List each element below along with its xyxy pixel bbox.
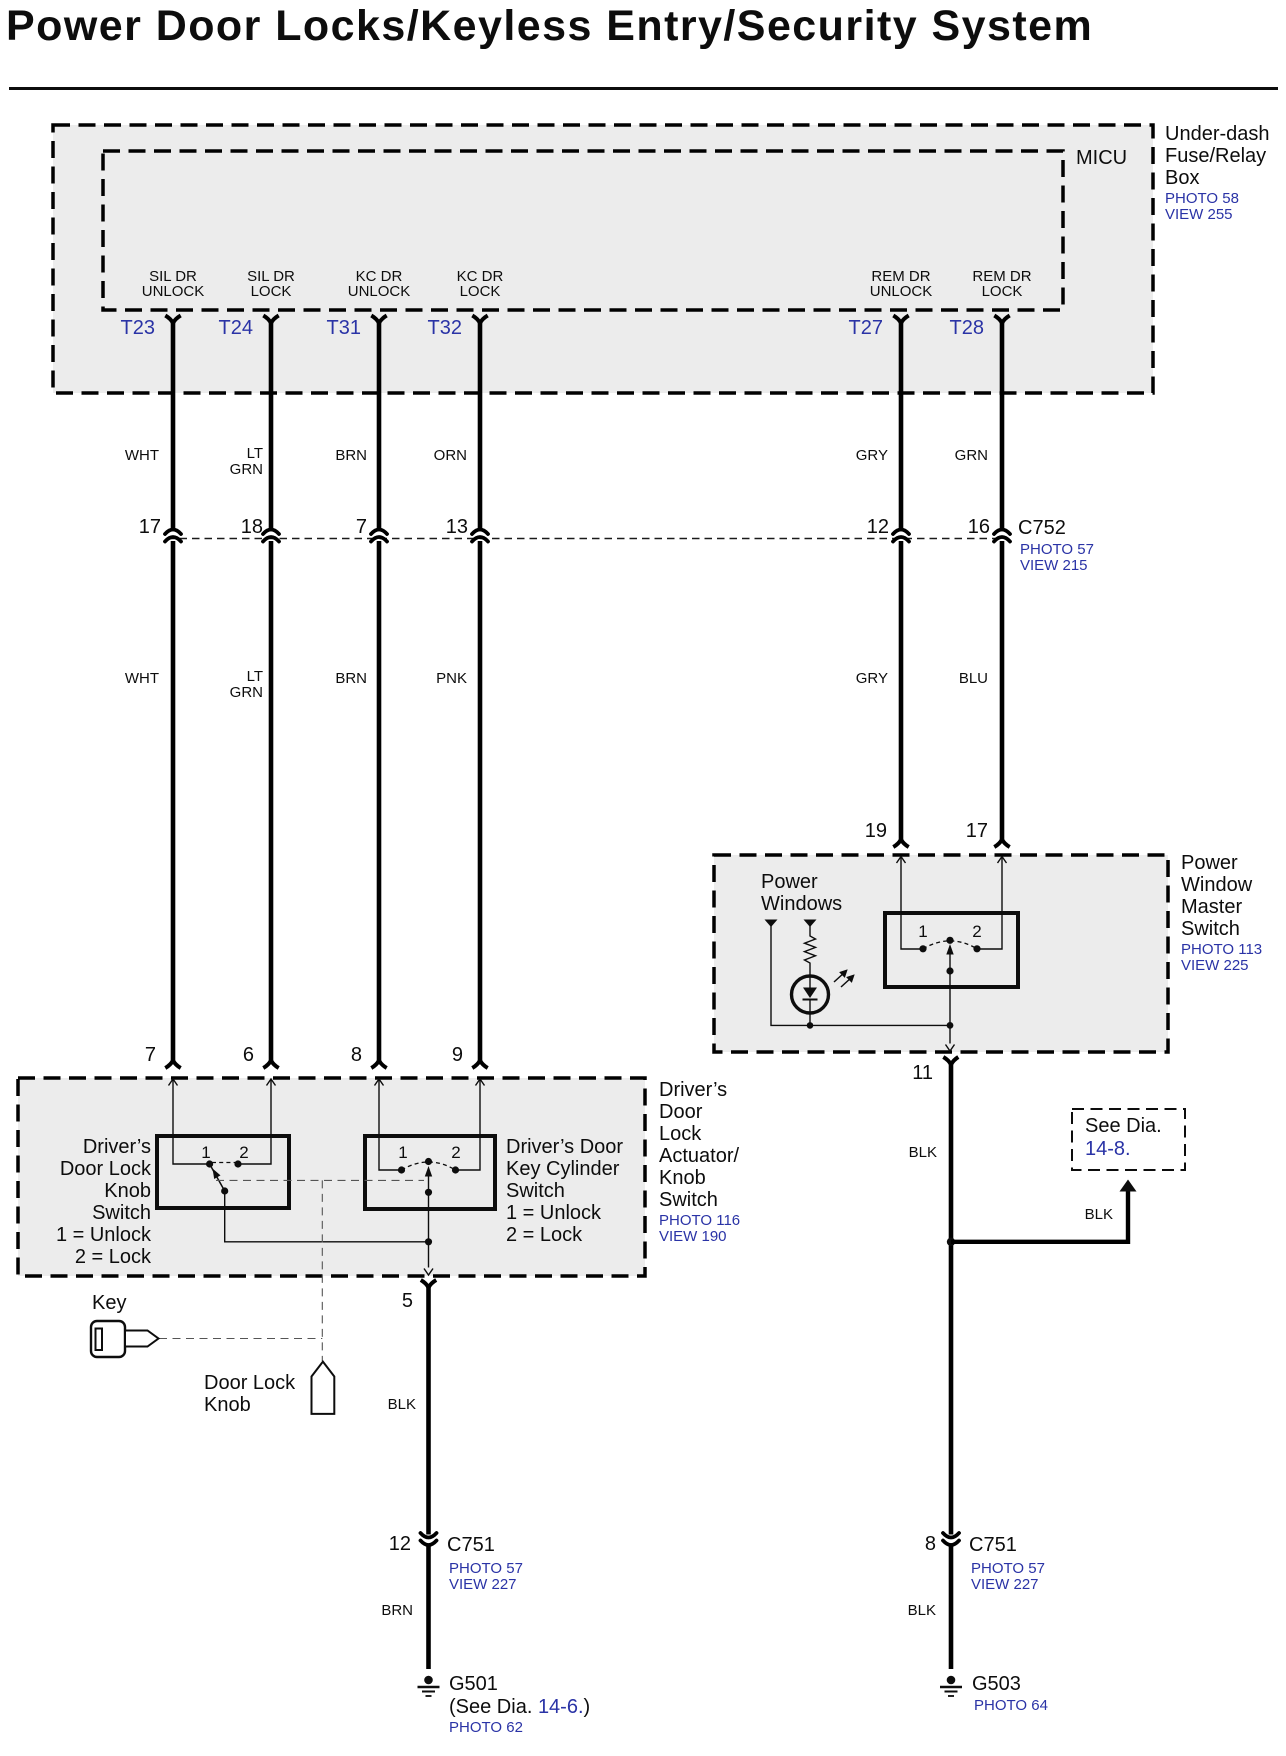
svg-text:Switch: Switch — [506, 1180, 565, 1202]
svg-text:UNLOCK: UNLOCK — [142, 283, 205, 300]
svg-text:VIEW 227: VIEW 227 — [449, 1576, 517, 1593]
svg-text:C751: C751 — [447, 1534, 495, 1556]
svg-text:8: 8 — [925, 1533, 936, 1555]
svg-text:GRN: GRN — [230, 684, 263, 701]
svg-text:2 = Lock: 2 = Lock — [75, 1246, 152, 1268]
svg-text:UNLOCK: UNLOCK — [870, 283, 933, 300]
svg-text:19: 19 — [865, 820, 887, 842]
svg-text:BLK: BLK — [388, 1396, 416, 1413]
svg-text:Driver’s: Driver’s — [83, 1136, 151, 1158]
svg-text:T24: T24 — [219, 317, 253, 339]
svg-text:LT: LT — [247, 445, 263, 462]
svg-text:5: 5 — [402, 1290, 413, 1312]
svg-text:Power: Power — [761, 871, 818, 893]
svg-text:Master: Master — [1181, 896, 1242, 918]
svg-text:Actuator/: Actuator/ — [659, 1145, 739, 1167]
svg-text:12: 12 — [389, 1533, 411, 1555]
svg-text:8: 8 — [351, 1044, 362, 1066]
svg-text:7: 7 — [145, 1044, 156, 1066]
svg-text:PHOTO 116: PHOTO 116 — [659, 1212, 740, 1229]
svg-text:GRN: GRN — [230, 461, 263, 478]
svg-text:PHOTO 57: PHOTO 57 — [449, 1560, 523, 1577]
svg-text:Knob: Knob — [104, 1180, 151, 1202]
svg-text:VIEW 225: VIEW 225 — [1181, 957, 1249, 974]
svg-text:Door: Door — [659, 1101, 703, 1123]
svg-text:Driver’s: Driver’s — [659, 1079, 727, 1101]
svg-text:2: 2 — [239, 1143, 248, 1162]
svg-text:MICU: MICU — [1076, 147, 1127, 169]
svg-text:PHOTO 113: PHOTO 113 — [1181, 941, 1262, 958]
svg-text:PHOTO 58: PHOTO 58 — [1165, 190, 1239, 207]
svg-text:Switch: Switch — [1181, 918, 1240, 940]
svg-text:C751: C751 — [969, 1534, 1017, 1556]
svg-text:2 = Lock: 2 = Lock — [506, 1224, 583, 1246]
svg-text:PHOTO 62: PHOTO 62 — [449, 1719, 523, 1736]
svg-text:14-8.: 14-8. — [1085, 1138, 1131, 1160]
svg-text:1: 1 — [398, 1143, 407, 1162]
svg-text:13: 13 — [446, 516, 468, 538]
svg-text:Box: Box — [1165, 167, 1199, 189]
svg-text:17: 17 — [139, 516, 161, 538]
svg-text:G503: G503 — [972, 1673, 1021, 1695]
svg-text:Switch: Switch — [659, 1189, 718, 1211]
svg-text:BLK: BLK — [1085, 1206, 1113, 1223]
svg-text:Knob: Knob — [659, 1167, 706, 1189]
svg-text:BLK: BLK — [908, 1602, 936, 1619]
svg-text:Switch: Switch — [92, 1202, 151, 1224]
svg-text:GRY: GRY — [856, 670, 888, 687]
svg-text:PHOTO 57: PHOTO 57 — [971, 1560, 1045, 1577]
svg-text:BLK: BLK — [909, 1144, 937, 1161]
svg-text:PHOTO 64: PHOTO 64 — [974, 1697, 1048, 1714]
svg-text:PNK: PNK — [436, 670, 467, 687]
svg-text:GRN: GRN — [955, 447, 988, 464]
svg-text:2: 2 — [451, 1143, 460, 1162]
svg-text:Knob: Knob — [204, 1394, 251, 1416]
svg-text:Windows: Windows — [761, 893, 842, 915]
svg-text:2: 2 — [972, 922, 981, 941]
svg-text:9: 9 — [452, 1044, 463, 1066]
svg-text:18: 18 — [241, 516, 263, 538]
svg-text:7: 7 — [356, 516, 367, 538]
svg-text:T31: T31 — [327, 317, 361, 339]
svg-text:LOCK: LOCK — [251, 283, 292, 300]
svg-text:C752: C752 — [1018, 517, 1066, 539]
svg-text:Window: Window — [1181, 874, 1253, 896]
svg-text:BRN: BRN — [335, 670, 367, 687]
svg-text:Under-dash: Under-dash — [1165, 123, 1270, 145]
svg-text:BRN: BRN — [381, 1602, 413, 1619]
svg-text:(See Dia. 14-6.): (See Dia. 14-6.) — [449, 1696, 590, 1718]
svg-text:VIEW 215: VIEW 215 — [1020, 557, 1088, 574]
svg-text:T23: T23 — [121, 317, 155, 339]
svg-text:LOCK: LOCK — [982, 283, 1023, 300]
svg-text:16: 16 — [968, 516, 990, 538]
svg-text:1: 1 — [201, 1143, 210, 1162]
svg-text:Driver’s Door: Driver’s Door — [506, 1136, 623, 1158]
svg-text:Key Cylinder: Key Cylinder — [506, 1158, 620, 1180]
svg-text:Power: Power — [1181, 852, 1238, 874]
svg-text:6: 6 — [243, 1044, 254, 1066]
svg-text:WHT: WHT — [125, 447, 159, 464]
svg-text:Door Lock: Door Lock — [204, 1372, 296, 1394]
svg-text:1: 1 — [918, 922, 927, 941]
svg-text:T28: T28 — [950, 317, 984, 339]
svg-text:11: 11 — [912, 1062, 933, 1084]
svg-text:See Dia.: See Dia. — [1085, 1115, 1162, 1137]
svg-text:T32: T32 — [428, 317, 462, 339]
svg-text:1 = Unlock: 1 = Unlock — [506, 1202, 602, 1224]
svg-text:GRY: GRY — [856, 447, 888, 464]
svg-text:T27: T27 — [849, 317, 883, 339]
svg-text:VIEW 190: VIEW 190 — [659, 1228, 727, 1245]
svg-text:Lock: Lock — [659, 1123, 702, 1145]
svg-text:VIEW 255: VIEW 255 — [1165, 206, 1233, 223]
svg-text:Key: Key — [92, 1292, 126, 1314]
svg-text:WHT: WHT — [125, 670, 159, 687]
svg-text:LOCK: LOCK — [460, 283, 501, 300]
svg-text:LT: LT — [247, 668, 263, 685]
svg-text:G501: G501 — [449, 1673, 498, 1695]
svg-text:1 = Unlock: 1 = Unlock — [56, 1224, 152, 1246]
svg-text:Power Door Locks/Keyless Entry: Power Door Locks/Keyless Entry/Security … — [6, 2, 1093, 50]
svg-text:BLU: BLU — [959, 670, 988, 687]
svg-text:Door Lock: Door Lock — [60, 1158, 152, 1180]
svg-text:ORN: ORN — [434, 447, 467, 464]
svg-text:PHOTO 57: PHOTO 57 — [1020, 541, 1094, 558]
svg-text:UNLOCK: UNLOCK — [348, 283, 411, 300]
svg-text:BRN: BRN — [335, 447, 367, 464]
svg-text:VIEW 227: VIEW 227 — [971, 1576, 1039, 1593]
svg-text:17: 17 — [966, 820, 988, 842]
svg-text:Fuse/Relay: Fuse/Relay — [1165, 145, 1266, 167]
svg-text:12: 12 — [867, 516, 889, 538]
